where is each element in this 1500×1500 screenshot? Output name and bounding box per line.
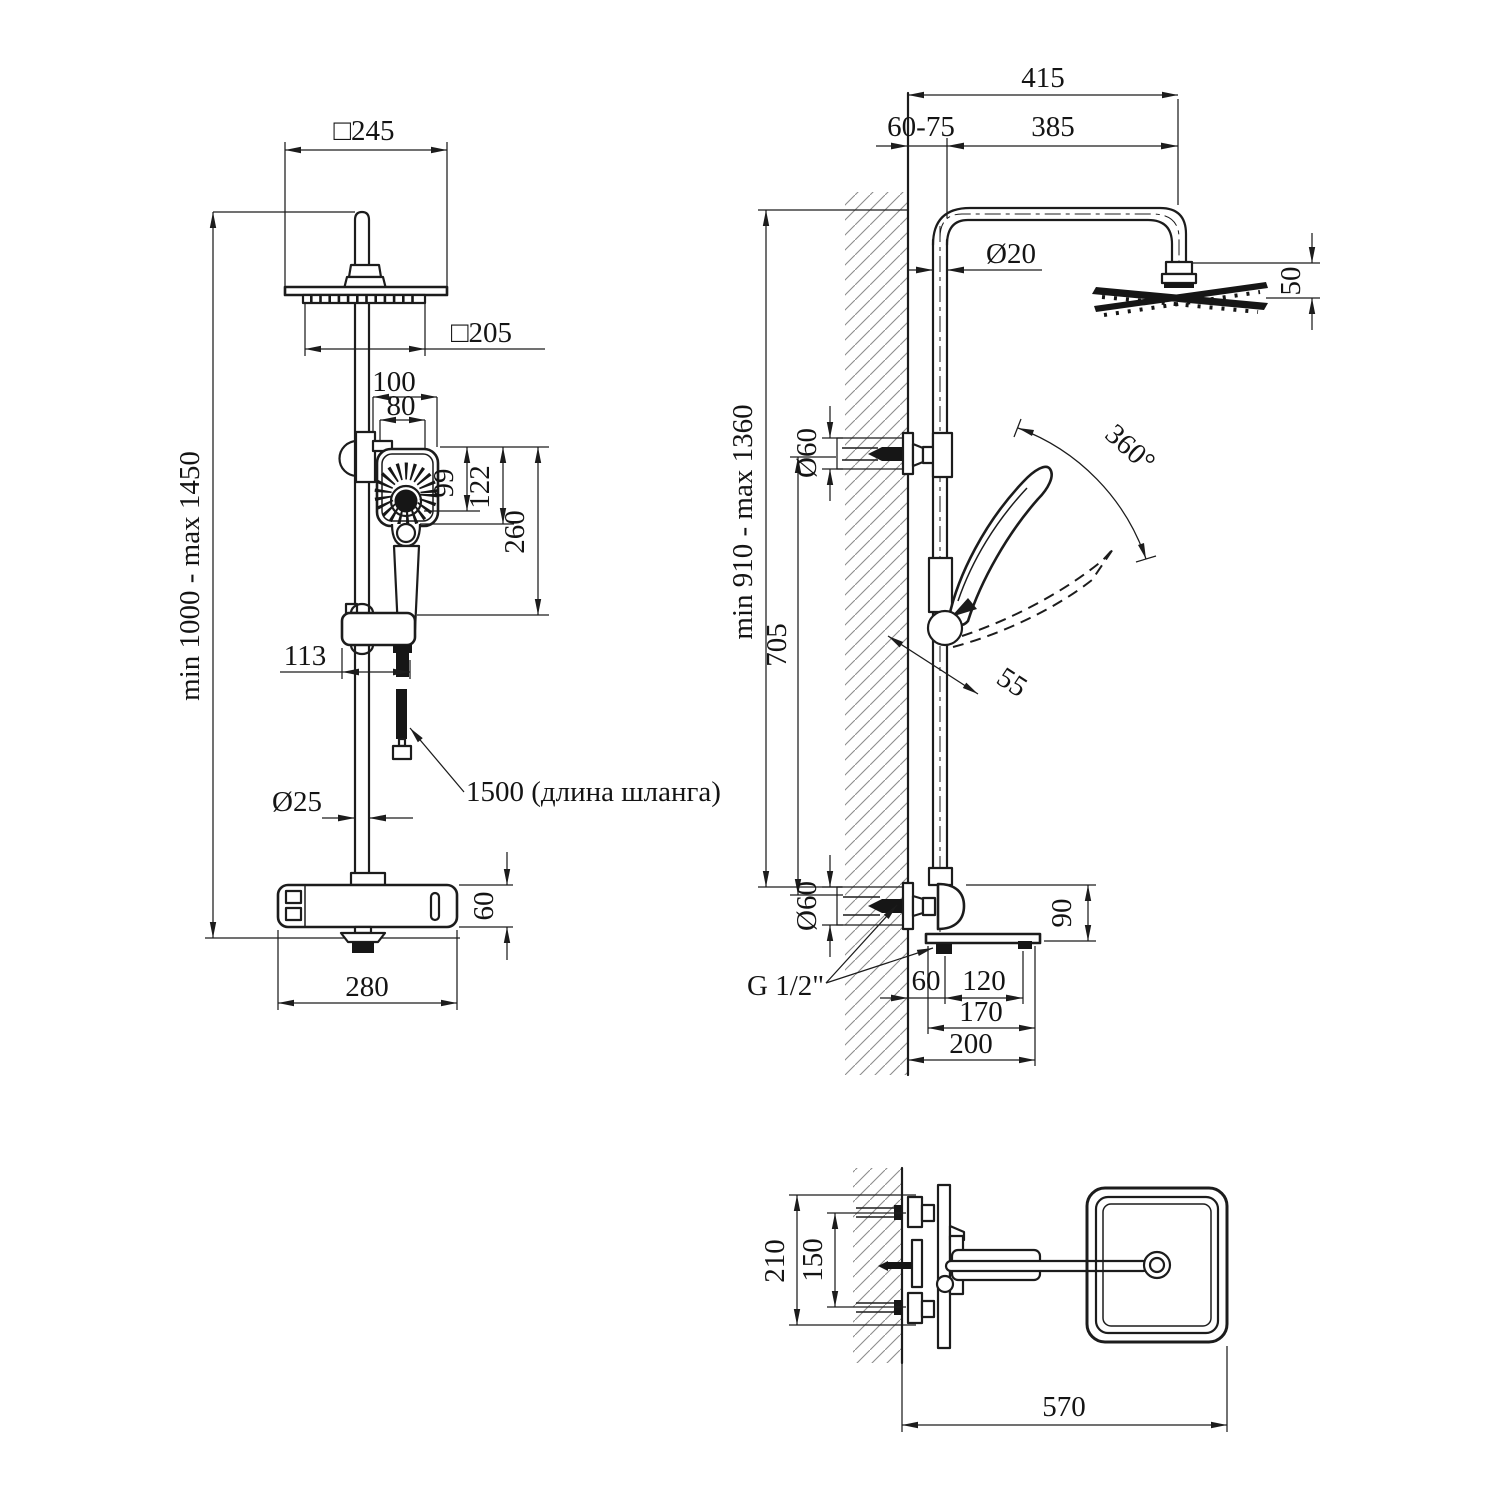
inlet-spacing-label: 150 xyxy=(797,1238,829,1282)
head-width-label: □245 xyxy=(333,115,394,147)
side-view: min 910 - max 1360 705 415 xyxy=(727,62,1320,1075)
dim-99-label: 99 xyxy=(428,469,460,498)
head-collar-upper xyxy=(349,265,381,277)
dim-pipe-diameter-front: Ø25 xyxy=(272,786,413,821)
front-view: min 1000 - max 1450 □245 □205 xyxy=(174,115,721,1010)
mixer-pipe-collar xyxy=(351,873,385,885)
mixer-front xyxy=(278,873,457,953)
handset-spray-center xyxy=(395,490,418,513)
rain-head-plate xyxy=(285,287,447,295)
handset-face-width-label: 80 xyxy=(387,390,416,422)
handset-pivot xyxy=(928,611,962,645)
spout-tab-span-label: 120 xyxy=(962,965,1006,997)
mixer-window-cold xyxy=(286,908,301,920)
handset-blade xyxy=(949,467,1052,625)
hose-segment xyxy=(396,689,407,739)
bracket-body xyxy=(342,613,415,645)
mixer-outlet-flare xyxy=(341,933,385,942)
dim-spout-height: 90 xyxy=(966,885,1096,941)
head-inlet-top xyxy=(1144,1252,1170,1278)
escutcheon-top-label: Ø60 xyxy=(791,428,823,478)
mixer-height-label: 60 xyxy=(468,892,500,921)
pipe-diameter-side-label: Ø20 xyxy=(986,238,1036,270)
rotation-label: 360° xyxy=(1099,418,1161,479)
overall-height-label: min 1000 - max 1450 xyxy=(174,451,206,701)
pipe-diameter-front-label: Ø25 xyxy=(272,786,322,818)
spout-tab xyxy=(1018,941,1032,949)
hose-front: 1500 (длина шланга) xyxy=(393,645,721,808)
riser-pipe xyxy=(355,212,369,885)
mixer-body-side xyxy=(938,884,964,929)
head-drop-label: 50 xyxy=(1275,267,1307,296)
rain-head-side xyxy=(1092,262,1268,315)
wall-hatch xyxy=(845,192,908,1075)
dim-spray-plate-width: □205 xyxy=(305,303,545,356)
dim-total-projection: 570 xyxy=(902,1346,1227,1432)
escutcheon-top xyxy=(903,433,913,474)
technical-drawing: min 1000 - max 1450 □245 □205 xyxy=(0,0,1500,1500)
wall-adjust-label: 60-75 xyxy=(887,111,955,143)
column-height-label: min 910 - max 1360 xyxy=(727,404,759,639)
handset-offset-label: 55 xyxy=(991,661,1033,704)
spout-total-label: 200 xyxy=(949,1028,993,1060)
spray-plate-width-label: □205 xyxy=(451,317,512,349)
spout-length-label: 170 xyxy=(959,996,1003,1028)
dim-escutcheon-top: Ø60 xyxy=(791,406,843,501)
mixer-window-hot xyxy=(286,891,301,903)
dim-122-label: 122 xyxy=(464,465,496,509)
mixer-lever-slot xyxy=(431,893,439,920)
blueprint-canvas: min 1000 - max 1450 □245 □205 xyxy=(0,0,1500,1500)
arm-total-label: 415 xyxy=(1021,62,1065,94)
mixer-pipe-joint xyxy=(929,868,952,885)
bracket-distance-label: 705 xyxy=(761,623,793,667)
arm-length-label: 385 xyxy=(1031,111,1075,143)
hose-nut xyxy=(393,746,411,759)
head-nut-upper xyxy=(1166,262,1192,274)
escutcheon-bottom xyxy=(903,883,913,929)
dim-handset-lengths: 99 122 260 xyxy=(417,447,549,615)
spout-outlet xyxy=(936,944,952,954)
dim-handset-offset: 55 xyxy=(888,636,1033,704)
dim-escutcheon-bottom: Ø60 xyxy=(791,855,843,957)
dim-bracket-distance: 705 xyxy=(761,457,843,895)
dim-arm-length: 60-75 385 xyxy=(876,111,1178,218)
escutcheon-bottom-label: Ø60 xyxy=(791,881,823,931)
dim-113-label: 113 xyxy=(284,640,326,672)
dim-pipe-diameter-side: Ø20 xyxy=(908,238,1042,273)
pipe-sleeve xyxy=(356,432,375,482)
dim-mixer-height: 60 xyxy=(459,852,513,960)
arm-top xyxy=(946,1261,1148,1271)
handset-side xyxy=(928,467,1113,647)
dim-260-label: 260 xyxy=(499,510,531,554)
handset-button xyxy=(397,524,415,542)
top-view: 210 150 570 xyxy=(759,1168,1227,1432)
body-span-label: 210 xyxy=(759,1239,791,1283)
shower-arm xyxy=(933,208,1186,262)
spout-wall-gap-label: 60 xyxy=(912,965,941,997)
hose-length-label: 1500 (длина шланга) xyxy=(466,776,721,808)
pipe-clamp-top xyxy=(933,433,952,477)
mixer-aerator xyxy=(352,942,374,953)
head-nut-lower xyxy=(1162,274,1196,283)
total-projection-label: 570 xyxy=(1042,1391,1086,1423)
mixer-width-label: 280 xyxy=(345,971,389,1003)
spout-height-label: 90 xyxy=(1046,899,1078,928)
slider-sleeve-side xyxy=(929,558,952,612)
thread-size-label: G 1/2" xyxy=(747,970,824,1002)
dim-head-drop: 50 xyxy=(1192,233,1320,330)
diverter-knob-top xyxy=(937,1276,953,1292)
